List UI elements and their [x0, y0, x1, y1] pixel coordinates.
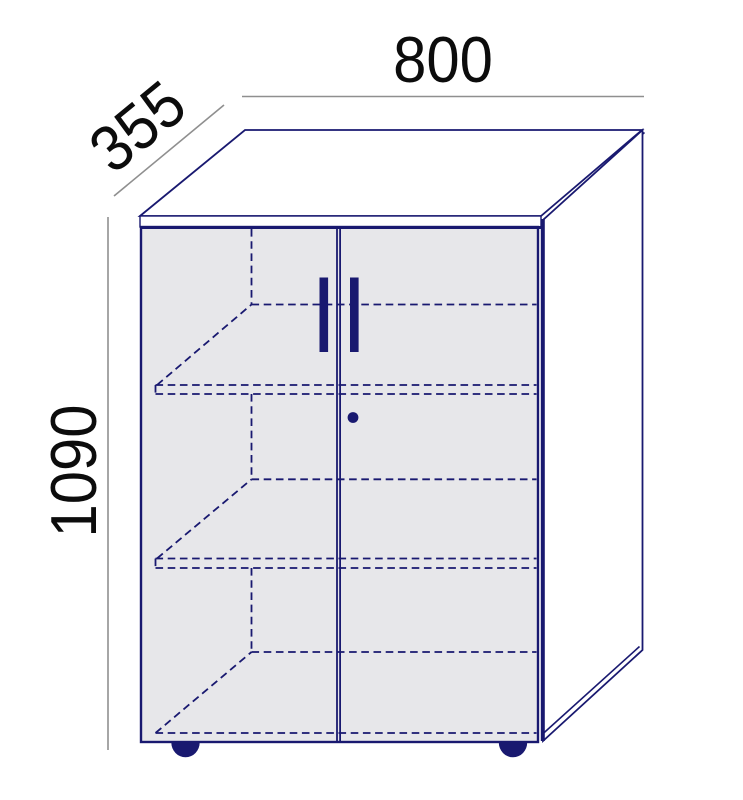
svg-text:800: 800	[393, 24, 493, 97]
svg-text:1090: 1090	[38, 404, 111, 537]
svg-text:355: 355	[76, 67, 199, 187]
